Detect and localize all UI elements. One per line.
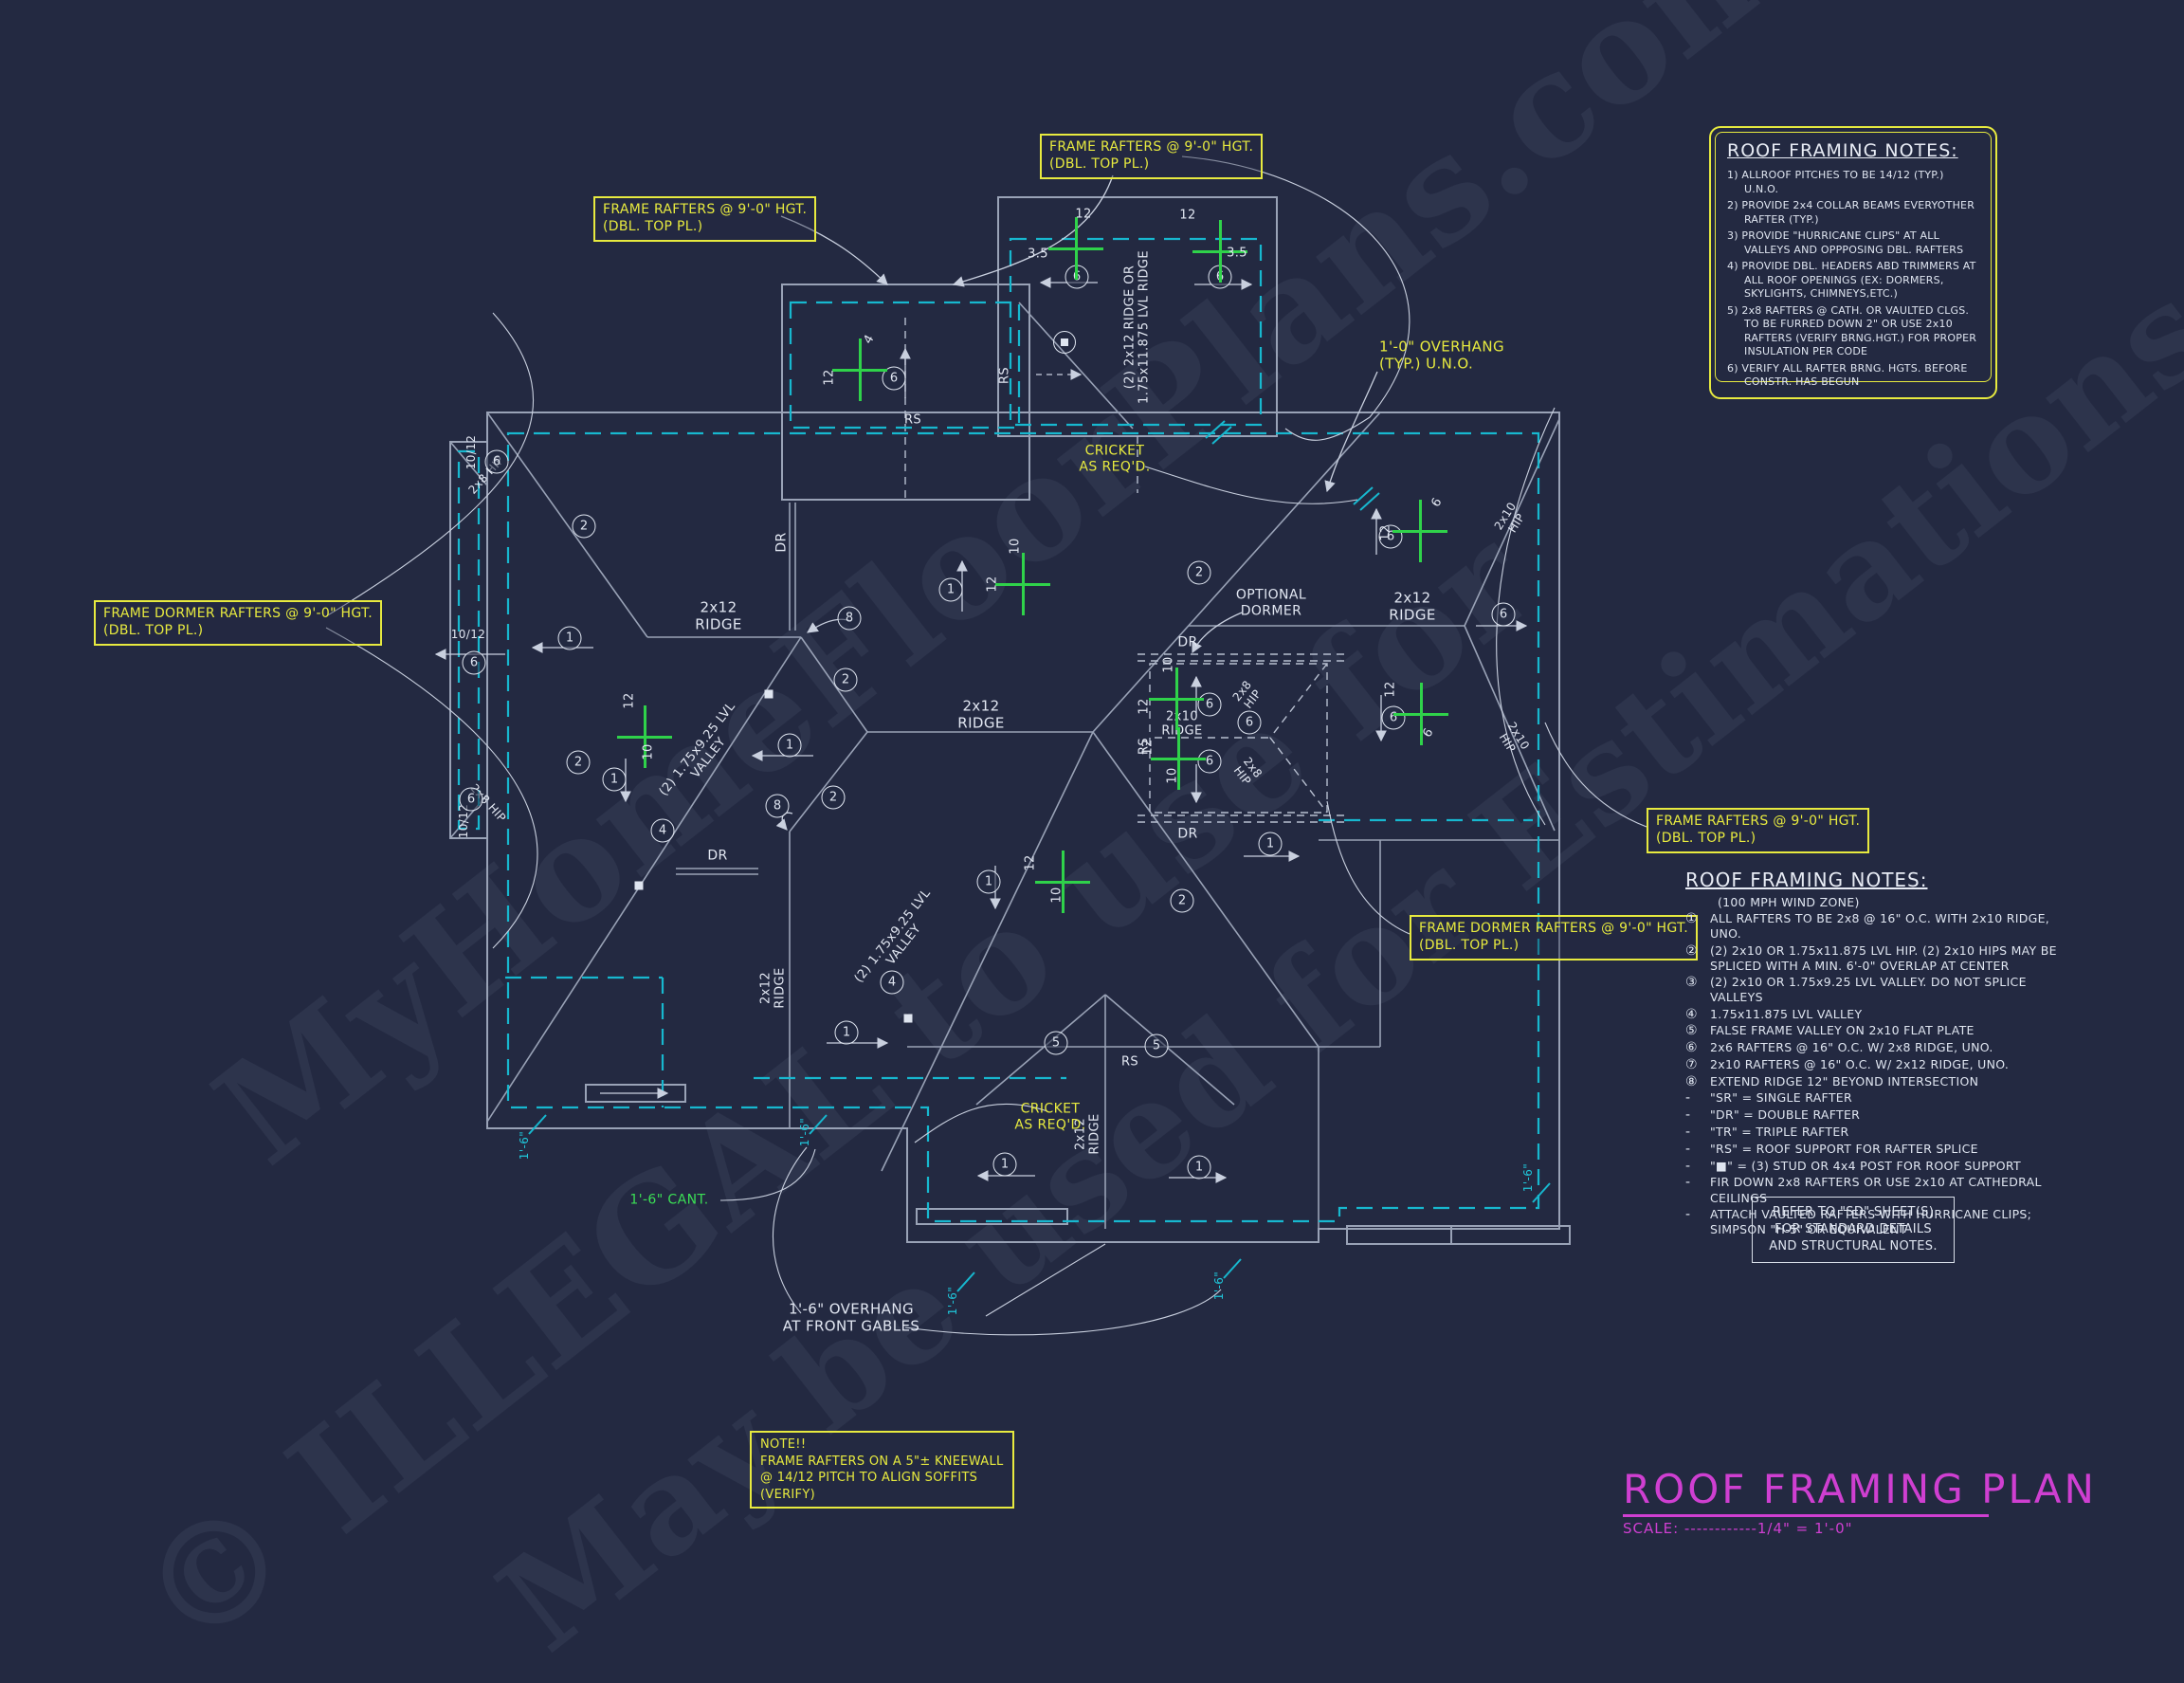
callout-line: (DBL. TOP PL.) bbox=[1049, 155, 1253, 173]
pitch-value: 10 bbox=[1166, 767, 1180, 783]
keynote-circle-1: 1 bbox=[1188, 1156, 1211, 1180]
pitch-value: 12 bbox=[1379, 524, 1393, 540]
keynote-circle-1: 1 bbox=[977, 870, 1001, 894]
keynote-circle-4: 4 bbox=[881, 971, 904, 995]
keyed-note-row: ②(2) 2x10 OR 1.75x11.875 LVL HIP. (2) 2x… bbox=[1685, 943, 2065, 975]
pitch-value: 3.5 bbox=[1227, 247, 1247, 261]
plan-label: 1'-6" bbox=[798, 1118, 811, 1146]
plan-label: 1'-6" OVERHANG AT FRONT GABLES bbox=[783, 1301, 920, 1334]
sheet-title: ROOF FRAMING PLAN bbox=[1623, 1466, 1989, 1517]
keyed-note-text: 2x10 RAFTERS @ 16" O.C. W/ 2x12 RIDGE, U… bbox=[1710, 1057, 2009, 1073]
plan-label: RS bbox=[1121, 1054, 1138, 1069]
keyed-note-marker: ⑥ bbox=[1685, 1040, 1710, 1056]
keyed-note-text: "■" = (3) STUD OR 4x4 POST FOR ROOF SUPP… bbox=[1710, 1159, 2021, 1175]
roof-support-post-marker bbox=[635, 882, 644, 890]
keyed-note-text: EXTEND RIDGE 12" BEYOND INTERSECTION bbox=[1710, 1074, 1978, 1090]
plan-label: RS bbox=[904, 412, 921, 427]
callout-line: (DBL. TOP PL.) bbox=[103, 622, 373, 639]
framing-note-item: 6) VERIFY ALL RAFTER BRNG. HGTS. BEFORE … bbox=[1727, 362, 1979, 390]
keynote-circle-1: 1 bbox=[778, 734, 802, 758]
keyed-note-marker: - bbox=[1685, 1207, 1710, 1238]
plan-label: OPTIONAL DORMER bbox=[1236, 587, 1306, 618]
keyed-note-row: ④1.75x11.875 LVL VALLEY bbox=[1685, 1007, 2065, 1023]
keynote-circle-5: 5 bbox=[1145, 1034, 1169, 1058]
pitch-value: 12 bbox=[986, 576, 1000, 592]
callout-line: FRAME DORMER RAFTERS @ 9'-0" HGT. bbox=[103, 605, 373, 622]
keynote-circle-6: 6 bbox=[1198, 750, 1222, 774]
callout-frame-dormer-left: FRAME DORMER RAFTERS @ 9'-0" HGT.(DBL. T… bbox=[94, 600, 382, 646]
pitch-value: 10 bbox=[1009, 538, 1023, 554]
keyed-note-marker: ③ bbox=[1685, 975, 1710, 1006]
callout-line: FRAME RAFTERS @ 9'-0" HGT. bbox=[1049, 138, 1253, 155]
keynote-circle-2: 2 bbox=[822, 786, 846, 810]
keyed-note-text: "TR" = TRIPLE RAFTER bbox=[1710, 1125, 1849, 1141]
roof-framing-notes-title: ROOF FRAMING NOTES: bbox=[1727, 140, 1979, 161]
keynote-circle-2: 2 bbox=[1171, 889, 1194, 913]
framing-note-item: 3) PROVIDE "HURRICANE CLIPS" AT ALL VALL… bbox=[1727, 229, 1979, 257]
keynote-circle-1: 1 bbox=[1259, 832, 1283, 856]
keyed-note-text: ALL RAFTERS TO BE 2x8 @ 16" O.C. WITH 2x… bbox=[1710, 911, 2065, 942]
plan-label: 2x12 RIDGE bbox=[695, 599, 742, 632]
keynote-circle-1: 1 bbox=[603, 768, 627, 792]
keynote-circle-2: 2 bbox=[1188, 561, 1211, 585]
plan-label: 10/12 bbox=[464, 435, 478, 470]
pitch-value: 12 bbox=[1141, 739, 1156, 755]
roof-support-post-marker bbox=[904, 1015, 913, 1023]
keynote-circle-2: 2 bbox=[573, 515, 596, 539]
plan-label: 2x12 RIDGE bbox=[759, 967, 789, 1008]
keyed-note-row: -"■" = (3) STUD OR 4x4 POST FOR ROOF SUP… bbox=[1685, 1159, 2065, 1175]
pitch-value: 12 bbox=[823, 369, 837, 385]
callout-line: (DBL. TOP PL.) bbox=[603, 218, 807, 235]
keynote-circle-6: 6 bbox=[485, 450, 509, 474]
refer-to-sd-sheets-box: REFER TO "SD" SHEET(S)FOR STANDARD DETAI… bbox=[1752, 1197, 1955, 1263]
keyed-note-text: (2) 2x10 OR 1.75x11.875 LVL HIP. (2) 2x1… bbox=[1710, 943, 2065, 975]
roof-support-post-marker-circled bbox=[1053, 331, 1076, 354]
plan-label: 1'-6" bbox=[946, 1287, 959, 1315]
keyed-notes-title: ROOF FRAMING NOTES: bbox=[1685, 869, 2065, 891]
plan-label: 1'-6" bbox=[518, 1131, 531, 1160]
roof-support-post-marker bbox=[765, 690, 773, 699]
pitch-cross-bar-v bbox=[859, 338, 862, 401]
keyed-note-marker: - bbox=[1685, 1159, 1710, 1175]
callout-line: (DBL. TOP PL.) bbox=[1419, 937, 1688, 954]
pitch-value: 12 bbox=[1384, 681, 1398, 697]
pitch-cross-bar-v bbox=[1062, 851, 1065, 913]
keyed-note-row: ①ALL RAFTERS TO BE 2x8 @ 16" O.C. WITH 2… bbox=[1685, 911, 2065, 942]
plan-label: 1'-6" bbox=[1212, 1271, 1226, 1300]
callout-frame-dormer-right: FRAME DORMER RAFTERS @ 9'-0" HGT.(DBL. T… bbox=[1410, 915, 1698, 960]
roof-framing-notes-box-inner: ROOF FRAMING NOTES: 1) ALLROOF PITCHES T… bbox=[1715, 132, 1992, 382]
keynote-circle-1: 1 bbox=[558, 627, 582, 650]
pitch-value: 10 bbox=[1050, 887, 1065, 903]
roof-framing-notes-box: ROOF FRAMING NOTES: 1) ALLROOF PITCHES T… bbox=[1709, 126, 1997, 399]
refer-line: AND STRUCTURAL NOTES. bbox=[1757, 1238, 1949, 1255]
dimension-arrows bbox=[436, 175, 1526, 1178]
keyed-note-row: -"TR" = TRIPLE RAFTER bbox=[1685, 1125, 2065, 1141]
keyed-note-text: FALSE FRAME VALLEY ON 2x10 FLAT PLATE bbox=[1710, 1023, 1975, 1039]
plan-label: DR bbox=[774, 532, 791, 552]
pitch-cross-bar-v bbox=[1420, 683, 1423, 745]
keynote-circle-4: 4 bbox=[651, 819, 675, 843]
plan-label: 1'-0" OVERHANG (TYP.) U.N.O. bbox=[1379, 338, 1504, 372]
keyed-note-marker: ② bbox=[1685, 943, 1710, 975]
note-line: FRAME RAFTERS ON A 5"± KNEEWALL bbox=[760, 1454, 1004, 1471]
keyed-note-row: ③(2) 2x10 OR 1.75x9.25 LVL VALLEY. DO NO… bbox=[1685, 975, 2065, 1006]
plan-label: 2x12 RIDGE bbox=[957, 698, 1005, 731]
pitch-value: 3.5 bbox=[1028, 247, 1048, 262]
refer-line: FOR STANDARD DETAILS bbox=[1757, 1221, 1949, 1238]
keyed-note-row: ⑥2x6 RAFTERS @ 16" O.C. W/ 2x8 RIDGE, UN… bbox=[1685, 1040, 2065, 1056]
keyed-note-marker: ④ bbox=[1685, 1007, 1710, 1023]
keyed-note-marker: - bbox=[1685, 1090, 1710, 1107]
kneewall-note-box: NOTE!!FRAME RAFTERS ON A 5"± KNEEWALL@ 1… bbox=[750, 1431, 1014, 1509]
keynote-circle-6: 6 bbox=[1198, 693, 1222, 717]
callout-frame-rafters-right: FRAME RAFTERS @ 9'-0" HGT.(DBL. TOP PL.) bbox=[1647, 808, 1869, 853]
keyed-note-text: "RS" = ROOF SUPPORT FOR RAFTER SPLICE bbox=[1710, 1142, 1978, 1158]
keynote-circle-6: 6 bbox=[1238, 711, 1262, 735]
keyed-note-marker: ⑧ bbox=[1685, 1074, 1710, 1090]
hip-valley-ridge-lines bbox=[450, 302, 1559, 1229]
plan-label: 10/12 bbox=[451, 628, 486, 641]
pitch-cross-bar-v bbox=[1175, 668, 1178, 730]
pitch-value: 12 bbox=[623, 692, 637, 708]
keyed-note-row: -"RS" = ROOF SUPPORT FOR RAFTER SPLICE bbox=[1685, 1142, 2065, 1158]
keynote-circle-1: 1 bbox=[939, 578, 963, 602]
cyan-tick-marks bbox=[529, 421, 1550, 1291]
keynote-circle-6: 6 bbox=[1492, 603, 1516, 627]
keyed-note-text: 1.75x11.875 LVL VALLEY bbox=[1710, 1007, 1862, 1023]
plan-label: 1'-6" CANT. bbox=[629, 1193, 708, 1209]
keynote-circle-6: 6 bbox=[1382, 706, 1406, 730]
keyed-note-marker: - bbox=[1685, 1125, 1710, 1141]
plan-label: DR bbox=[1177, 827, 1197, 843]
keyed-note-text: (2) 2x10 OR 1.75x9.25 LVL VALLEY. DO NOT… bbox=[1710, 975, 2065, 1006]
callout-line: (DBL. TOP PL.) bbox=[1656, 830, 1860, 847]
plan-label: 2x10 RIDGE bbox=[1161, 710, 1202, 740]
keyed-note-text: "SR" = SINGLE RAFTER bbox=[1710, 1090, 1852, 1107]
plan-label: 1'-6" bbox=[1521, 1163, 1535, 1192]
plan-label: RS bbox=[997, 367, 1011, 384]
keyed-note-row: -"DR" = DOUBLE RAFTER bbox=[1685, 1107, 2065, 1124]
note-line: @ 14/12 PITCH TO ALIGN SOFFITS bbox=[760, 1470, 1004, 1487]
pitch-cross-bar-v bbox=[1419, 500, 1422, 562]
pitch-cross-bar-v bbox=[1219, 220, 1222, 283]
pitch-value: 12 bbox=[1024, 854, 1038, 870]
callout-line: FRAME RAFTERS @ 9'-0" HGT. bbox=[603, 201, 807, 218]
keyed-note-row: -"SR" = SINGLE RAFTER bbox=[1685, 1090, 2065, 1107]
keyed-note-marker: - bbox=[1685, 1142, 1710, 1158]
keyed-note-row: ⑦2x10 RAFTERS @ 16" O.C. W/ 2x12 RIDGE, … bbox=[1685, 1057, 2065, 1073]
note-line: NOTE!! bbox=[760, 1436, 1004, 1454]
keynote-circle-8: 8 bbox=[766, 795, 790, 818]
callout-line: FRAME DORMER RAFTERS @ 9'-0" HGT. bbox=[1419, 920, 1688, 937]
roof-framing-notes-items: 1) ALLROOF PITCHES TO BE 14/12 (TYP.) U.… bbox=[1727, 169, 1979, 390]
framing-note-item: 2) PROVIDE 2x4 COLLAR BEAMS EVERYOTHER R… bbox=[1727, 199, 1979, 227]
keynote-circle-1: 1 bbox=[993, 1153, 1017, 1177]
keyed-note-text: 2x6 RAFTERS @ 16" O.C. W/ 2x8 RIDGE, UNO… bbox=[1710, 1040, 1993, 1056]
sheet-title-block: ROOF FRAMING PLAN SCALE: ------------1/4… bbox=[1623, 1466, 1989, 1537]
keyed-note-marker: - bbox=[1685, 1107, 1710, 1124]
keynote-circle-2: 2 bbox=[567, 751, 591, 775]
pitch-value: 12 bbox=[1075, 208, 1091, 222]
keyed-note-text: "DR" = DOUBLE RAFTER bbox=[1710, 1107, 1860, 1124]
roof-framing-keyed-notes: ROOF FRAMING NOTES: (100 MPH WIND ZONE) … bbox=[1685, 869, 2065, 1238]
keynote-circle-1: 1 bbox=[835, 1021, 859, 1045]
callout-frame-rafters-top: FRAME RAFTERS @ 9'-0" HGT.(DBL. TOP PL.) bbox=[1040, 134, 1263, 179]
keynote-circle-6: 6 bbox=[460, 788, 483, 812]
keyed-note-marker: ⑤ bbox=[1685, 1023, 1710, 1039]
keyed-note-marker: ① bbox=[1685, 911, 1710, 942]
roof-framing-plan-sheet: MyHomeFloorPlans.com© ILLEGAL to use for… bbox=[0, 0, 2184, 1638]
keyed-note-marker: - bbox=[1685, 1175, 1710, 1206]
pitch-value: 10 bbox=[1162, 656, 1176, 672]
pitch-value: 12 bbox=[1137, 698, 1152, 714]
plan-label: (2) 2x12 RIDGE OR 1.75x11.875 LVL RIDGE bbox=[1123, 250, 1153, 404]
keynote-circle-6: 6 bbox=[463, 651, 486, 675]
pitch-cross-bar-v bbox=[1075, 217, 1078, 280]
framing-note-item: 5) 2x8 RAFTERS @ CATH. OR VAULTED CLGS. … bbox=[1727, 304, 1979, 359]
keyed-note-row: ⑤FALSE FRAME VALLEY ON 2x10 FLAT PLATE bbox=[1685, 1023, 2065, 1039]
plan-label: DR bbox=[707, 849, 727, 865]
keynote-circle-5: 5 bbox=[1045, 1032, 1068, 1055]
keynote-circle-2: 2 bbox=[834, 668, 858, 692]
wind-zone-note: (100 MPH WIND ZONE) bbox=[1685, 895, 2065, 909]
framing-note-item: 1) ALLROOF PITCHES TO BE 14/12 (TYP.) U.… bbox=[1727, 169, 1979, 196]
pitch-cross-bar-v bbox=[1022, 553, 1025, 615]
keyed-note-marker: ⑦ bbox=[1685, 1057, 1710, 1073]
note-line: (VERIFY) bbox=[760, 1487, 1004, 1504]
pitch-value: 10 bbox=[642, 743, 656, 759]
callout-frame-rafters-left: FRAME RAFTERS @ 9'-0" HGT.(DBL. TOP PL.) bbox=[593, 196, 816, 242]
plan-label: 2x12 RIDGE bbox=[1389, 590, 1436, 623]
refer-line: REFER TO "SD" SHEET(S) bbox=[1757, 1204, 1949, 1221]
plan-label: CRICKET AS REQ'D. bbox=[1014, 1101, 1085, 1132]
keynote-circle-8: 8 bbox=[838, 607, 862, 631]
plan-label: DR bbox=[1177, 635, 1197, 651]
callout-line: FRAME RAFTERS @ 9'-0" HGT. bbox=[1656, 813, 1860, 830]
pitch-value: 12 bbox=[1179, 209, 1195, 223]
keyed-notes-items: ①ALL RAFTERS TO BE 2x8 @ 16" O.C. WITH 2… bbox=[1685, 911, 2065, 1237]
framing-note-item: 4) PROVIDE DBL. HEADERS ABD TRIMMERS AT … bbox=[1727, 260, 1979, 302]
keyed-note-row: ⑧EXTEND RIDGE 12" BEYOND INTERSECTION bbox=[1685, 1074, 2065, 1090]
sheet-scale: SCALE: ------------1/4" = 1'-0" bbox=[1623, 1520, 1989, 1537]
plan-label: CRICKET AS REQ'D. bbox=[1079, 443, 1150, 474]
